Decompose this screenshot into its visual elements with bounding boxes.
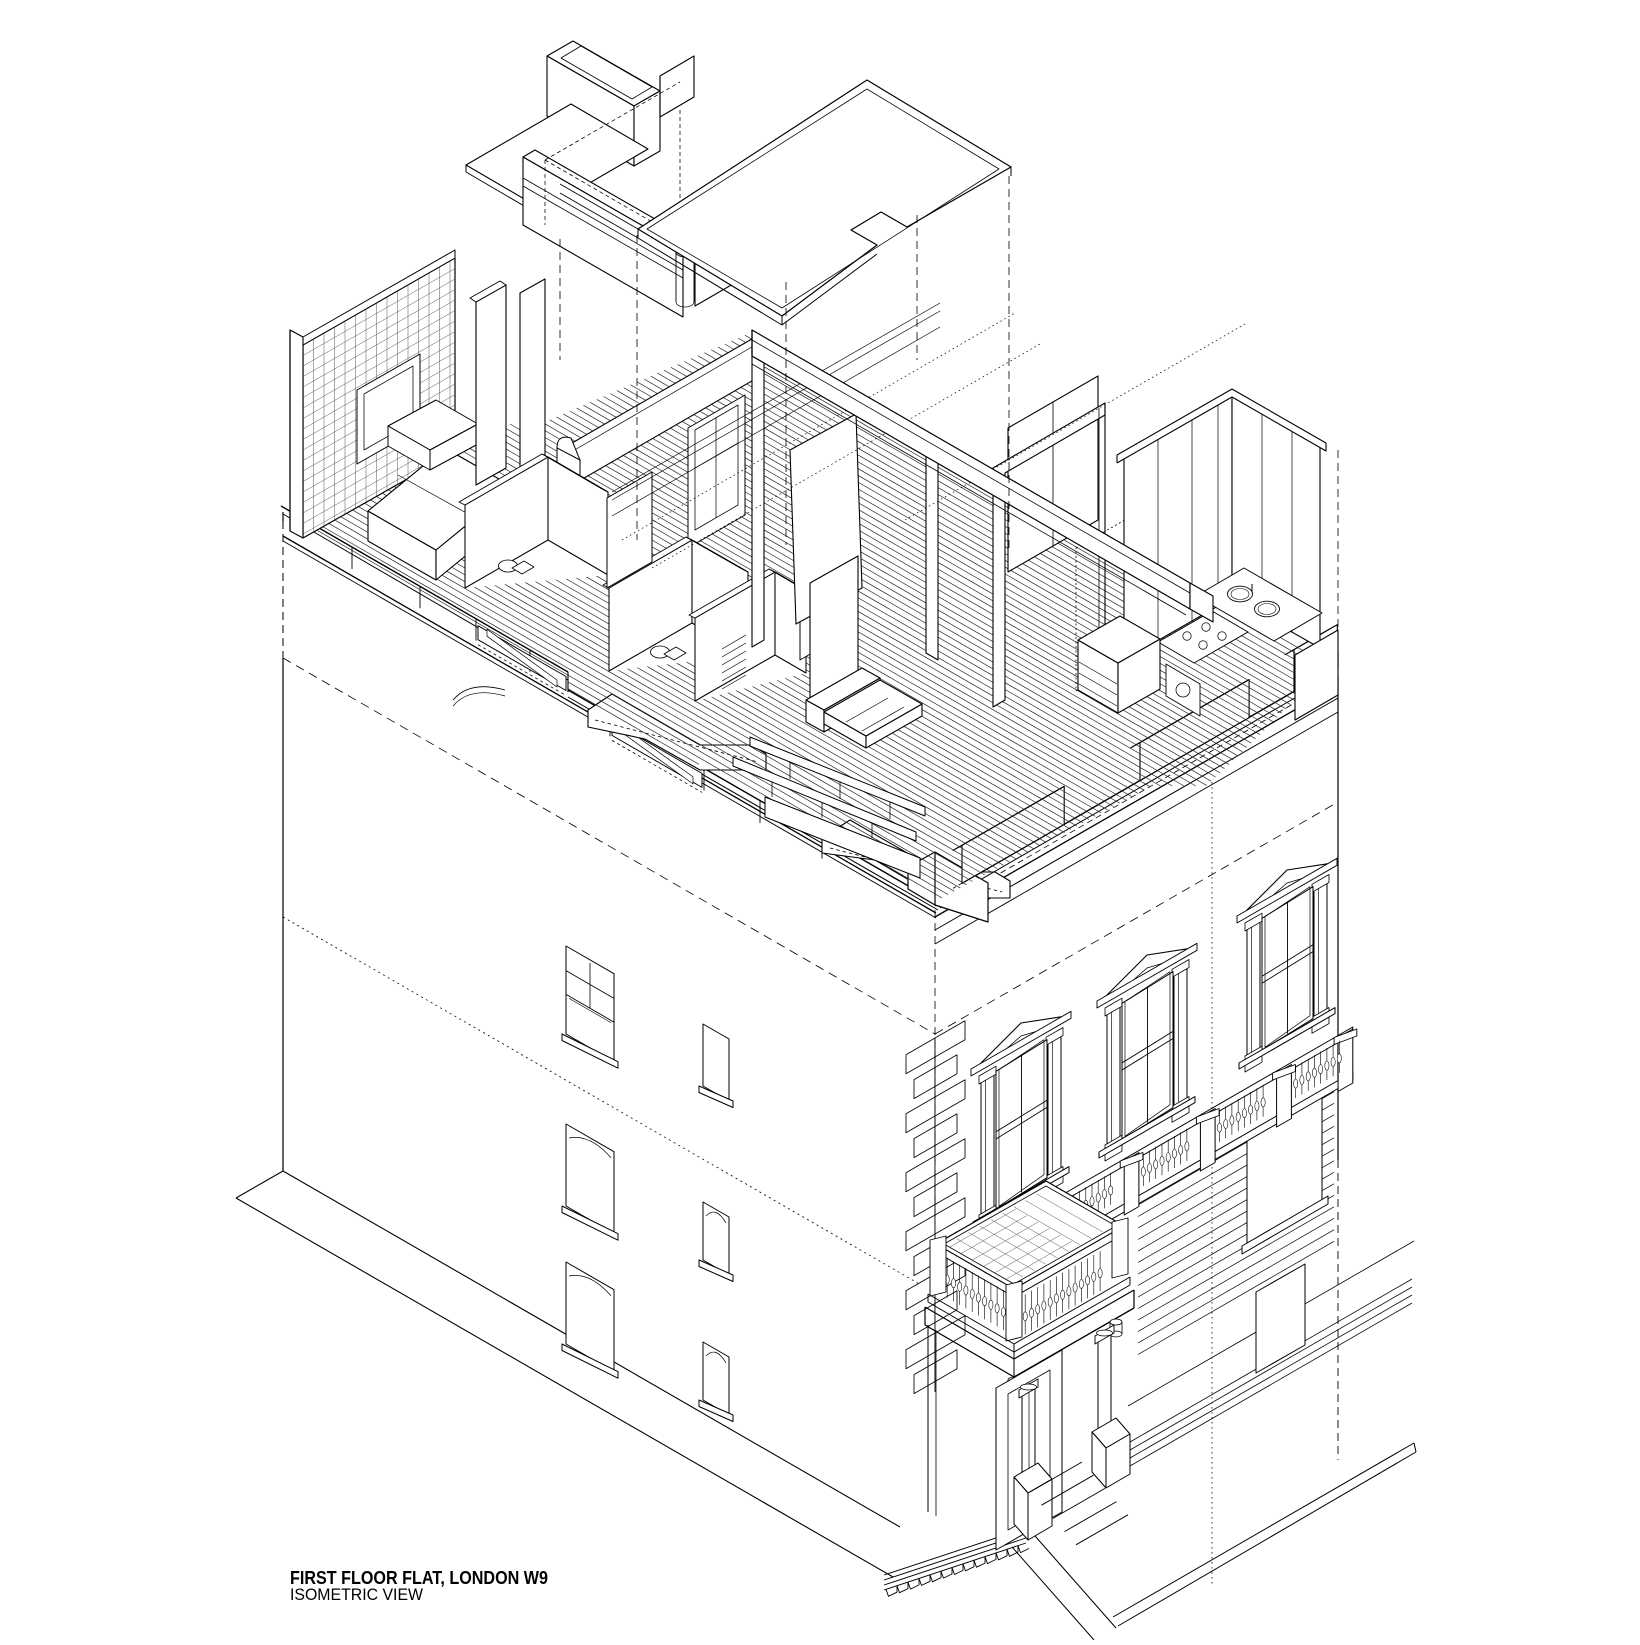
svg-text:ISOMETRIC VIEW: ISOMETRIC VIEW (290, 1585, 423, 1604)
